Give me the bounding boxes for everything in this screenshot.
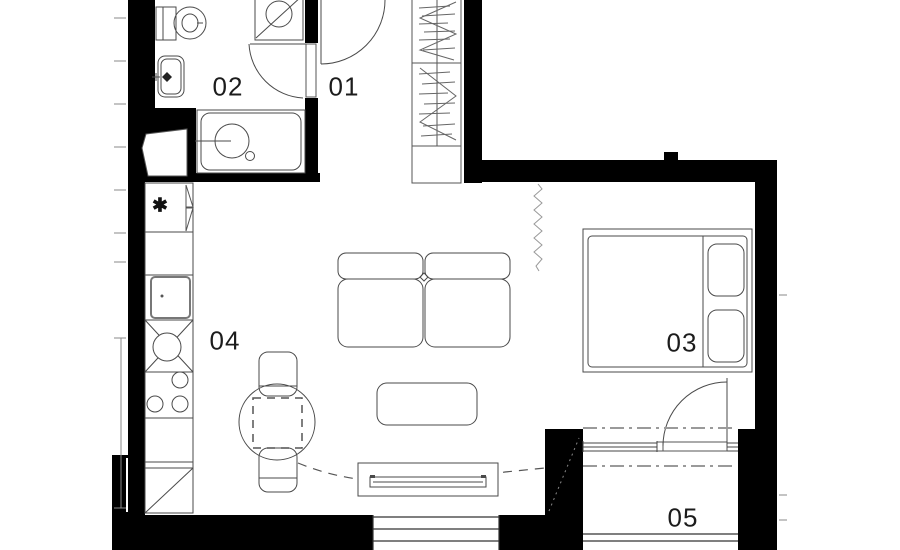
- dining-set: [239, 352, 315, 492]
- pillow: [708, 244, 744, 296]
- break-line: [534, 184, 542, 271]
- shaft: [142, 129, 187, 176]
- shower-bathtub: [195, 110, 305, 173]
- bathroom-door: [249, 43, 318, 98]
- room-label-05: 05: [668, 503, 699, 534]
- dining-table: [239, 384, 315, 460]
- dining-chair: [259, 448, 297, 492]
- room-label-02: 02: [213, 72, 244, 103]
- pillow: [708, 310, 744, 362]
- fridge: [186, 185, 193, 231]
- floor-plan: 01 02 03 04 05 ✱: [0, 0, 900, 550]
- entrance-door: [321, 0, 385, 64]
- coffee-table: [377, 383, 477, 425]
- toilet: [156, 7, 206, 40]
- kitchen-sink: [151, 277, 190, 318]
- bathroom-sink: [152, 56, 184, 97]
- room-label-01: 01: [329, 72, 360, 103]
- sink-unit: [145, 320, 193, 372]
- floor-plan-svg: [0, 0, 900, 550]
- wardrobe: [412, 0, 461, 183]
- living-room-window: [373, 515, 499, 550]
- room-label-03: 03: [667, 328, 698, 359]
- room-label-04: 04: [210, 326, 241, 357]
- balcony-door: [657, 378, 727, 451]
- sofa: [338, 253, 510, 347]
- dining-chair: [259, 352, 297, 396]
- tv-stand: [358, 463, 498, 496]
- wall-seam: [126, 458, 128, 512]
- washing-machine: [255, 0, 303, 40]
- balcony-railing: [583, 534, 738, 541]
- cooktop: [147, 372, 188, 412]
- dishwasher: [145, 468, 193, 513]
- fridge-marker: ✱: [152, 195, 168, 218]
